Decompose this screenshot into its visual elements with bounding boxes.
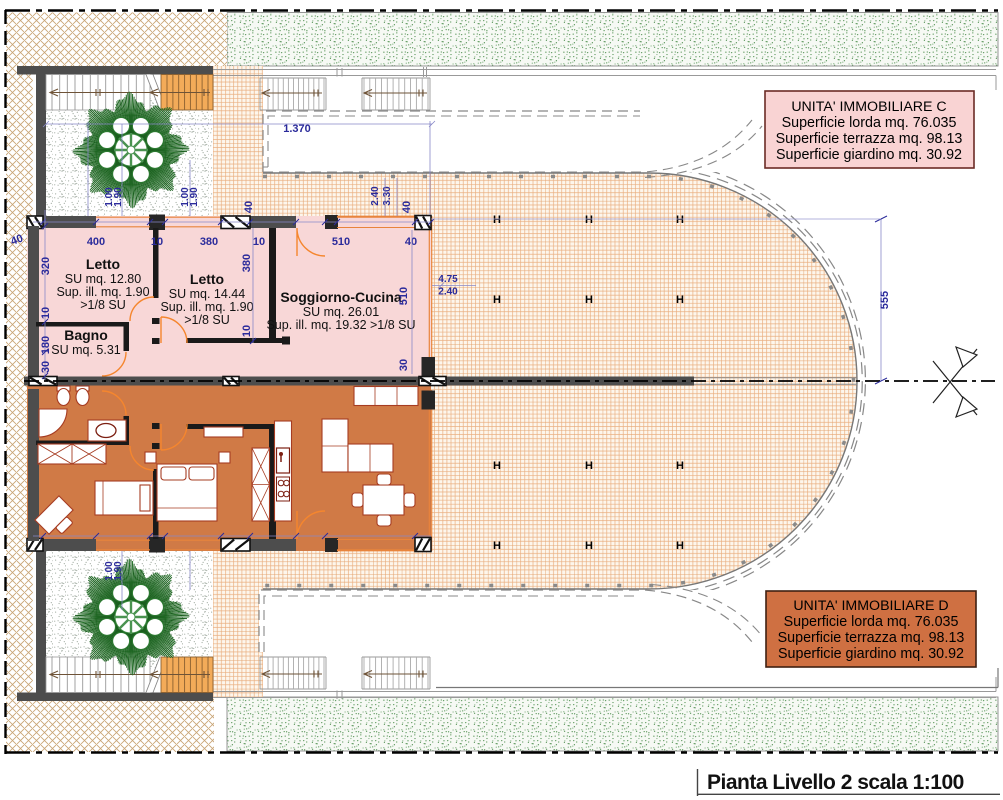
svg-text:400: 400 [87, 236, 105, 248]
svg-text:1.90: 1.90 [113, 561, 124, 581]
svg-text:1.90: 1.90 [113, 187, 124, 207]
svg-text:380: 380 [200, 236, 218, 248]
svg-text:H: H [585, 294, 593, 306]
svg-text:Pianta Livello 2 scala 1:100: Pianta Livello 2 scala 1:100 [707, 771, 964, 794]
svg-text:380: 380 [241, 254, 253, 272]
svg-text:H: H [585, 540, 593, 552]
svg-text:555: 555 [879, 291, 891, 309]
svg-text:Superficie lorda mq. 76.035: Superficie lorda mq. 76.035 [782, 115, 957, 131]
svg-text:Soggiorno-Cucina: Soggiorno-Cucina [280, 289, 402, 305]
svg-text:2.40: 2.40 [370, 186, 381, 206]
svg-text:H: H [676, 294, 684, 306]
svg-text:Letto: Letto [190, 271, 224, 287]
svg-text:Sup. ill. mq. 1.90: Sup. ill. mq. 1.90 [56, 285, 149, 299]
svg-text:Sup. ill. mq. 19.32 >1/8 SU: Sup. ill. mq. 19.32 >1/8 SU [266, 318, 415, 332]
svg-text:H: H [585, 214, 593, 226]
svg-text:H: H [585, 460, 593, 472]
svg-text:40: 40 [401, 201, 413, 213]
svg-text:4.75: 4.75 [438, 274, 458, 285]
svg-text:Sup. ill. mq. 1.90: Sup. ill. mq. 1.90 [160, 300, 253, 314]
svg-text:H: H [676, 460, 684, 472]
svg-text:Superficie giardino mq. 30.92: Superficie giardino mq. 30.92 [776, 147, 962, 163]
svg-text:H: H [493, 294, 501, 306]
svg-text:Superficie terrazza mq. 98.13: Superficie terrazza mq. 98.13 [776, 131, 963, 147]
svg-text:SU mq. 14.44: SU mq. 14.44 [169, 287, 245, 301]
svg-text:320: 320 [40, 257, 52, 275]
svg-text:3.30: 3.30 [382, 186, 393, 206]
svg-text:10: 10 [151, 236, 163, 248]
svg-text:180: 180 [40, 336, 52, 354]
svg-text:10: 10 [241, 325, 253, 337]
svg-text:>1/8 SU: >1/8 SU [80, 298, 126, 312]
svg-text:10: 10 [253, 236, 265, 248]
svg-text:SU mq. 26.01: SU mq. 26.01 [303, 305, 379, 319]
svg-text:10: 10 [40, 307, 52, 319]
svg-text:2.40: 2.40 [438, 287, 458, 298]
svg-text:UNITA' IMMOBILIARE D: UNITA' IMMOBILIARE D [793, 598, 948, 614]
svg-text:1.370: 1.370 [283, 123, 311, 135]
svg-text:SU mq. 12.80: SU mq. 12.80 [65, 272, 141, 286]
svg-text:40: 40 [243, 201, 255, 213]
svg-text:H: H [493, 214, 501, 226]
svg-text:1.90: 1.90 [189, 187, 200, 207]
svg-text:40: 40 [405, 236, 417, 248]
svg-text:H: H [676, 540, 684, 552]
svg-text:>1/8 SU: >1/8 SU [184, 313, 230, 327]
svg-text:Superficie terrazza mq. 98.13: Superficie terrazza mq. 98.13 [778, 630, 965, 646]
svg-text:Superficie lorda mq. 76.035: Superficie lorda mq. 76.035 [784, 614, 959, 630]
svg-text:Letto: Letto [86, 256, 120, 272]
svg-text:510: 510 [332, 236, 350, 248]
svg-text:SU mq. 5.31: SU mq. 5.31 [51, 343, 121, 357]
svg-text:H: H [676, 214, 684, 226]
svg-text:H: H [493, 460, 501, 472]
svg-text:Bagno: Bagno [64, 327, 108, 343]
svg-text:510: 510 [398, 287, 410, 305]
svg-text:Superficie giardino mq. 30.92: Superficie giardino mq. 30.92 [778, 646, 964, 662]
svg-text:H: H [493, 540, 501, 552]
svg-text:30: 30 [398, 359, 410, 371]
svg-text:UNITA' IMMOBILIARE C: UNITA' IMMOBILIARE C [791, 99, 946, 115]
svg-text:30: 30 [40, 361, 52, 373]
